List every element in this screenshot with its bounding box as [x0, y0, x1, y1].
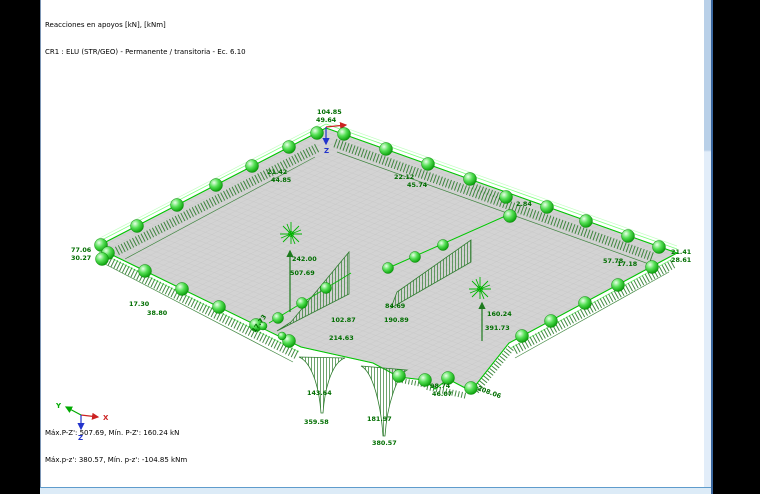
- support-node-sphere: [612, 279, 625, 292]
- reaction-value-label: 22.12: [394, 173, 414, 181]
- support-node-sphere: [410, 252, 421, 263]
- support-node-sphere: [380, 143, 393, 156]
- reaction-value-label: 242.00: [292, 255, 317, 263]
- support-node-sphere: [246, 160, 259, 173]
- support-node-sphere: [210, 179, 223, 192]
- support-node-sphere: [139, 265, 152, 278]
- slab-plate: [96, 128, 677, 391]
- support-node-sphere: [500, 191, 513, 204]
- support-node-sphere: [96, 253, 109, 266]
- support-node-sphere: [653, 241, 666, 254]
- reaction-value-label: 190.89: [384, 316, 409, 324]
- reaction-value-label: 77.06: [71, 246, 92, 254]
- max-min-forces: Máx.P-Z': 507.69, Mín. P-Z': 160.24 kN: [45, 429, 187, 438]
- reaction-value-label: 98.74: [430, 382, 451, 390]
- support-node-sphere: [176, 283, 189, 296]
- reaction-value-label: 17.30: [129, 300, 150, 308]
- model-viewport[interactable]: Z 104.8549.6421.4244.8522.1245.742.8477.…: [40, 0, 705, 487]
- reaction-value-label: 2.84: [516, 200, 532, 208]
- axis-y-label: Y: [55, 402, 62, 410]
- support-node-sphere: [278, 332, 286, 340]
- reaction-value-label: 104.85: [317, 108, 342, 116]
- reaction-value-label: 160.24: [487, 310, 512, 318]
- reaction-value-label: 181.97: [367, 415, 392, 423]
- reaction-value-label: 17.18: [617, 260, 638, 268]
- reaction-value-label: 507.69: [290, 269, 315, 277]
- reaction-value-label: 214.63: [329, 334, 354, 342]
- reaction-value-label: 21.41: [671, 248, 691, 256]
- reaction-value-label: 46.07: [432, 390, 452, 398]
- support-node-sphere: [516, 330, 529, 343]
- reaction-value-label: 359.58: [304, 418, 329, 426]
- support-node-sphere: [321, 283, 332, 294]
- support-node-sphere: [646, 261, 659, 274]
- support-node-sphere: [393, 370, 406, 383]
- support-node-sphere: [283, 141, 296, 154]
- max-min-moments: Máx.p-z': 380.57, Mín. p-z': -104.85 kNm: [45, 456, 187, 465]
- reaction-value-label: 44.85: [271, 176, 291, 184]
- reaction-value-label: 21.42: [267, 168, 287, 176]
- reaction-value-label: 28.61: [671, 256, 691, 264]
- support-node-sphere: [338, 128, 351, 141]
- support-node-sphere: [311, 127, 324, 140]
- reaction-value-label: 49.64: [316, 116, 337, 124]
- view-header: Reacciones en apoyos [kN], [kNm] CR1 : E…: [45, 3, 246, 75]
- result-type-title: Reacciones en apoyos [kN], [kNm]: [45, 21, 246, 30]
- support-node-sphere: [464, 173, 477, 186]
- support-node-sphere: [579, 297, 592, 310]
- support-node-sphere: [465, 382, 478, 395]
- reaction-value-label: 84.69: [385, 302, 406, 310]
- reaction-value-label: 391.73: [485, 324, 510, 332]
- vertical-scrollbar[interactable]: [704, 0, 711, 487]
- support-node-sphere: [438, 240, 449, 251]
- application-window: Z 104.8549.6421.4244.8522.1245.742.8477.…: [0, 0, 760, 494]
- load-combination-title: CR1 : ELU (STR/GEO) - Permanente / trans…: [45, 48, 246, 57]
- reaction-value-label: 208.06: [476, 384, 502, 400]
- reaction-value-label: 38.80: [147, 309, 168, 317]
- support-node-sphere: [171, 199, 184, 212]
- reaction-value-label: 30.27: [71, 254, 91, 262]
- support-node-sphere: [422, 158, 435, 171]
- reaction-value-label: 143.64: [307, 389, 332, 397]
- support-node-sphere: [504, 210, 517, 223]
- support-node-sphere: [541, 201, 554, 214]
- reaction-value-label: 380.57: [372, 439, 397, 447]
- support-node-sphere: [297, 298, 308, 309]
- support-node-sphere: [213, 301, 226, 314]
- support-node-sphere: [273, 313, 284, 324]
- support-node-sphere: [580, 215, 593, 228]
- window-right-border: [711, 0, 713, 494]
- support-node-sphere: [383, 263, 394, 274]
- reaction-value-label: 102.87: [331, 316, 356, 324]
- view-footer: Máx.P-Z': 507.69, Mín. P-Z': 160.24 kN M…: [45, 411, 187, 483]
- reaction-value-label: 45.74: [407, 181, 428, 189]
- support-node-sphere: [131, 220, 144, 233]
- top-node-z-label: Z: [324, 147, 329, 155]
- support-node-sphere: [545, 315, 558, 328]
- support-node-sphere: [622, 230, 635, 243]
- horizontal-scrollbar[interactable]: [40, 487, 711, 494]
